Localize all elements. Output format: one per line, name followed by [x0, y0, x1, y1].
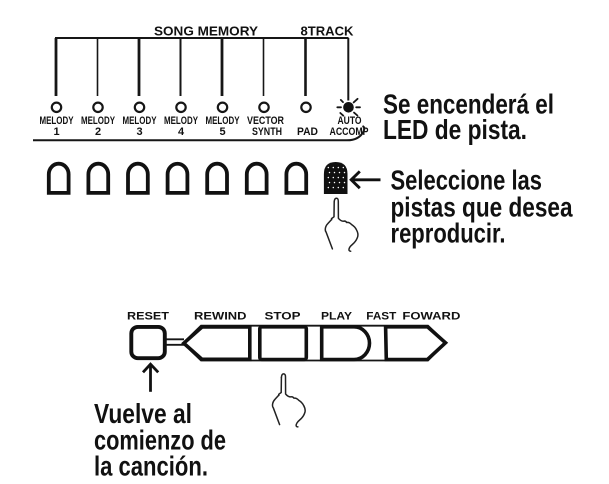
svg-text:LED de pista.: LED de pista.: [383, 114, 527, 145]
svg-text:3: 3: [136, 126, 142, 138]
svg-text:2: 2: [95, 126, 101, 138]
svg-text:REWIND: REWIND: [194, 311, 247, 323]
svg-text:STOP: STOP: [265, 311, 301, 323]
svg-text:1: 1: [53, 126, 59, 138]
svg-text:FOWARD: FOWARD: [402, 311, 460, 323]
svg-text:SYNTH: SYNTH: [252, 126, 282, 138]
svg-text:5: 5: [219, 126, 225, 138]
svg-text:la canción.: la canción.: [94, 451, 208, 482]
svg-text:SONG MEMORY: SONG MEMORY: [154, 24, 258, 39]
svg-text:reproducir.: reproducir.: [391, 217, 506, 248]
svg-text:RESET: RESET: [127, 311, 169, 323]
svg-text:PAD: PAD: [297, 126, 318, 138]
svg-text:FAST: FAST: [366, 311, 396, 323]
svg-text:PLAY: PLAY: [321, 311, 353, 323]
svg-text:8TRACK: 8TRACK: [301, 24, 355, 39]
svg-text:4: 4: [178, 126, 185, 138]
